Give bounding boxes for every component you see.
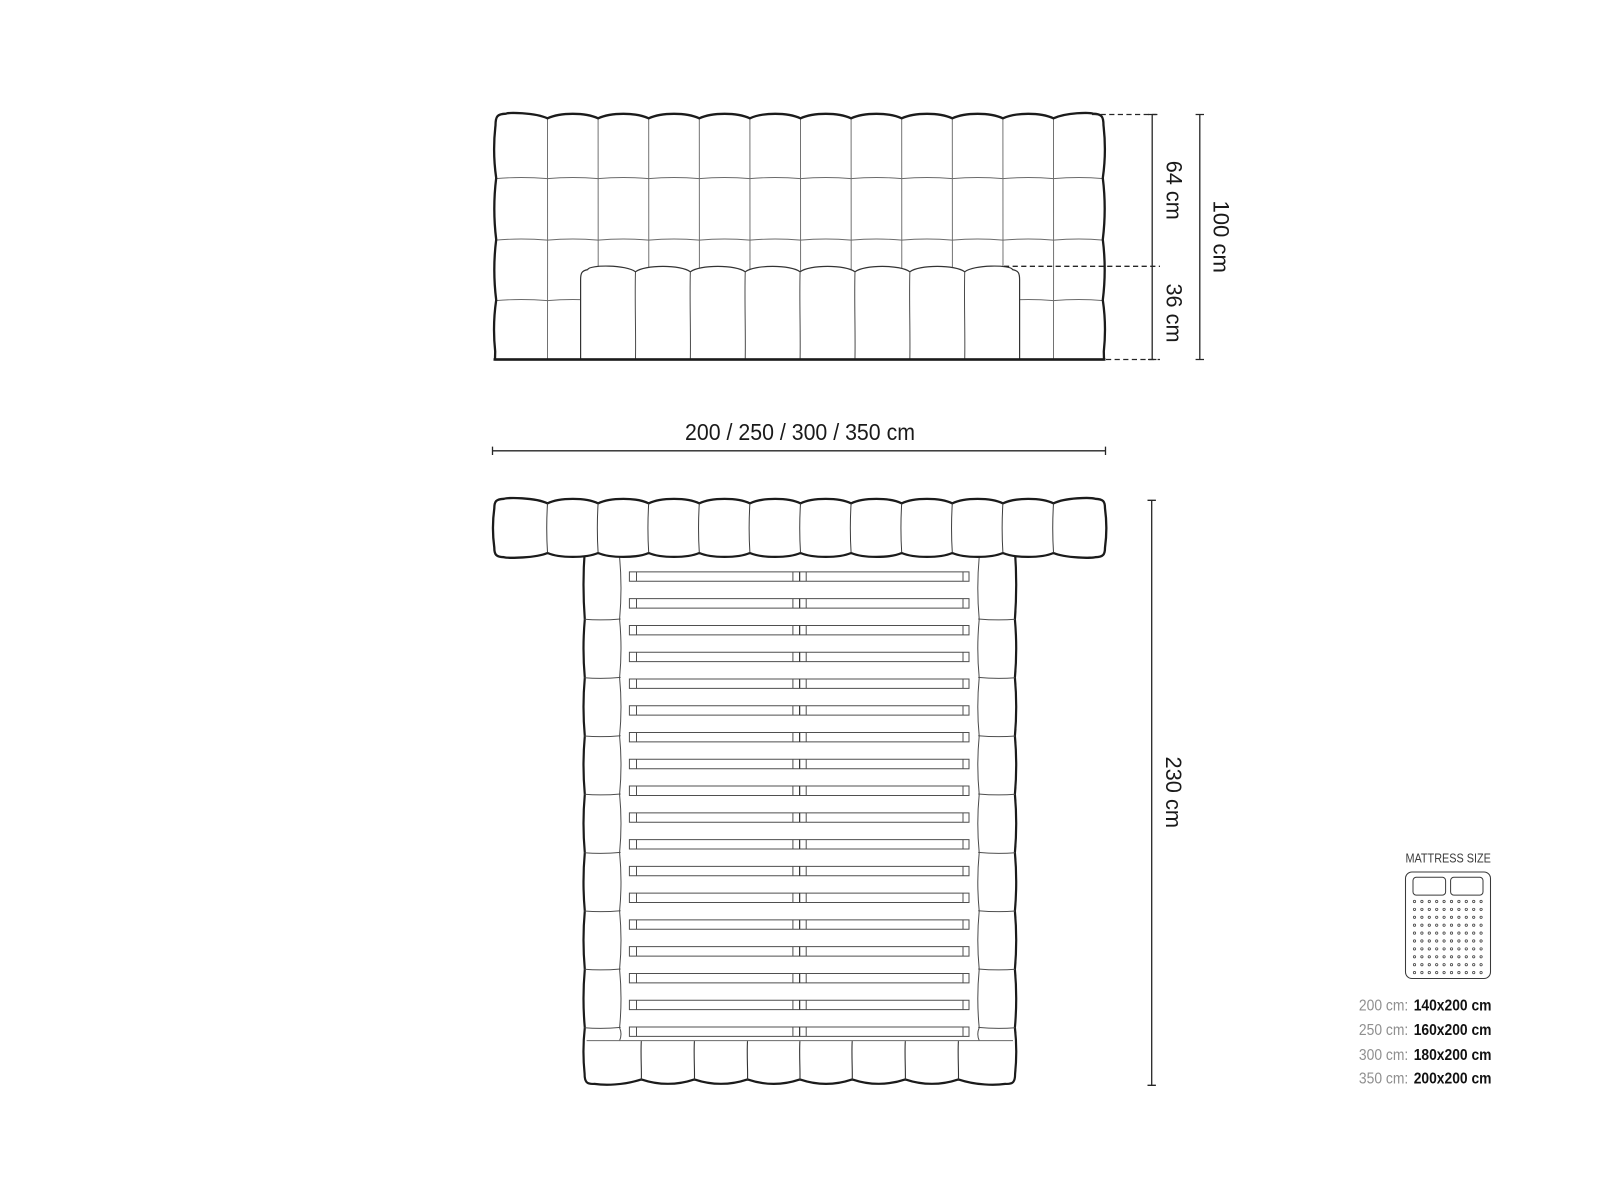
svg-text:140x200 cm: 140x200 cm (1414, 998, 1492, 1015)
svg-text:250 cm:: 250 cm: (1359, 1022, 1408, 1039)
svg-text:100 cm: 100 cm (1209, 200, 1234, 273)
svg-text:200 cm:: 200 cm: (1359, 998, 1408, 1015)
svg-text:200x200 cm: 200x200 cm (1414, 1071, 1492, 1088)
svg-text:230 cm: 230 cm (1161, 757, 1186, 829)
svg-text:200 / 250 / 300 / 350 cm: 200 / 250 / 300 / 350 cm (685, 419, 915, 445)
svg-text:180x200 cm: 180x200 cm (1414, 1047, 1492, 1064)
svg-text:MATTRESS SIZE: MATTRESS SIZE (1405, 851, 1491, 866)
svg-text:36 cm: 36 cm (1162, 284, 1187, 343)
svg-text:64 cm: 64 cm (1162, 161, 1187, 220)
svg-text:300 cm:: 300 cm: (1359, 1047, 1408, 1064)
svg-text:350 cm:: 350 cm: (1359, 1071, 1408, 1088)
svg-text:160x200 cm: 160x200 cm (1414, 1022, 1492, 1039)
